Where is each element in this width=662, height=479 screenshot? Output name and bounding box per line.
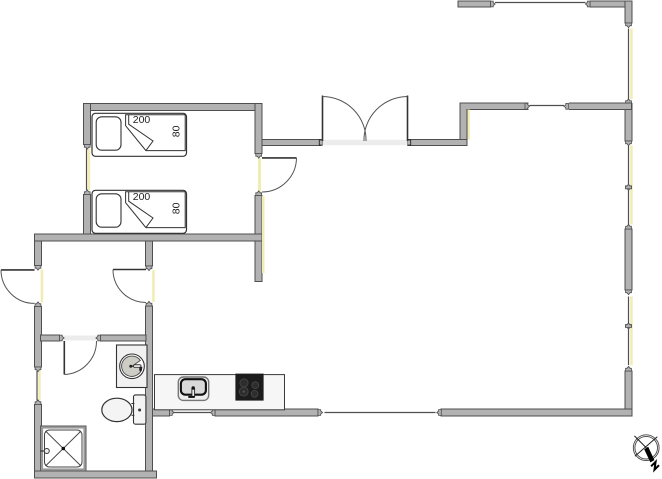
svg-text:80: 80: [171, 202, 183, 214]
svg-text:200: 200: [133, 114, 151, 126]
svg-text:80: 80: [171, 125, 183, 137]
svg-text:200: 200: [133, 191, 151, 203]
